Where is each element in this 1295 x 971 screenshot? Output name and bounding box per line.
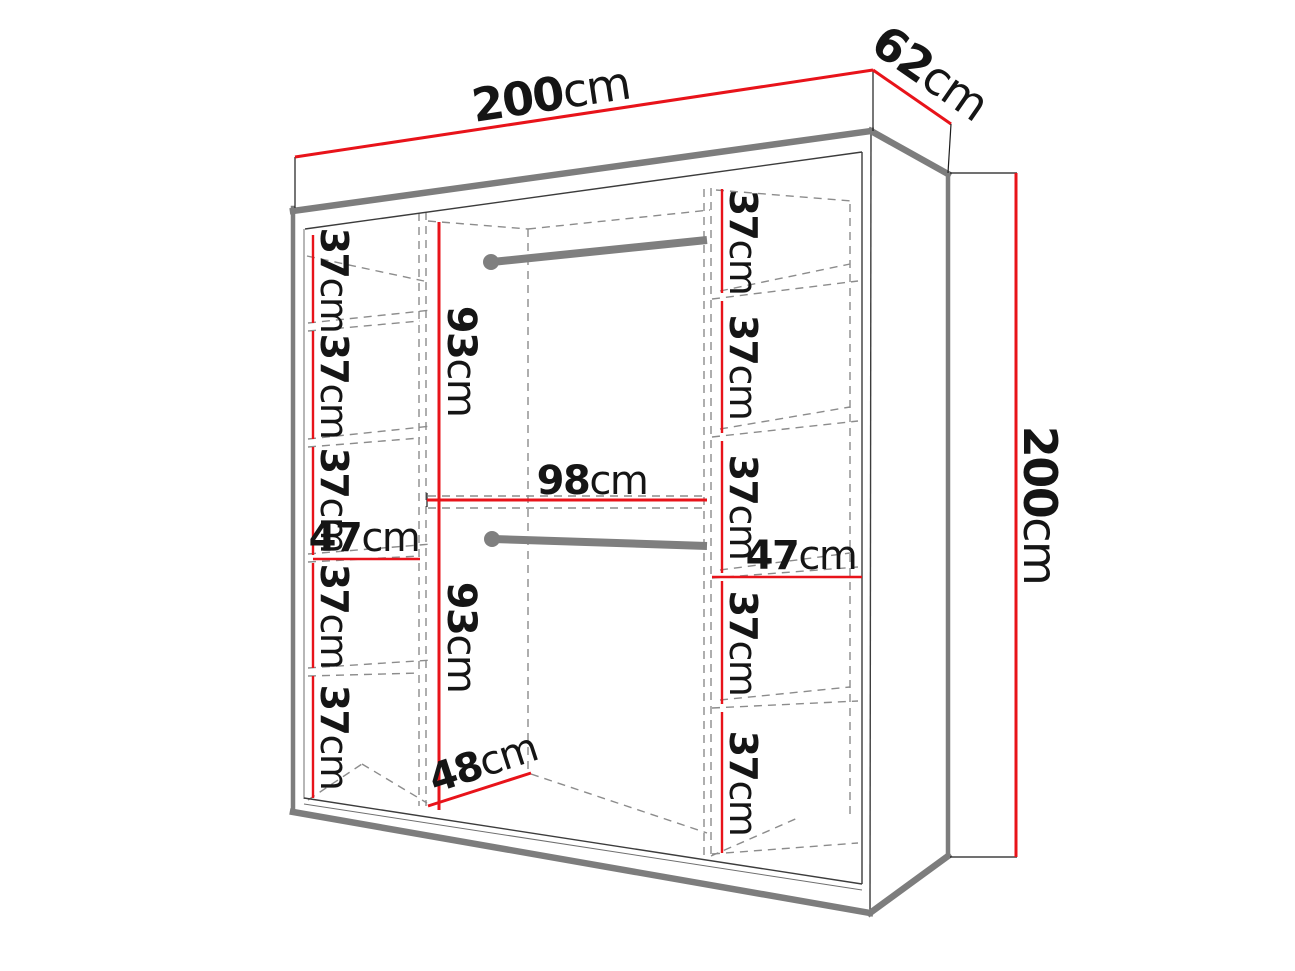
left-gap-1-label: 37cm: [312, 228, 356, 333]
center-lower-height-label: 93cm: [438, 582, 484, 693]
plinth-top-edge: [304, 804, 862, 890]
left-gap-2-label: 37cm: [312, 334, 356, 439]
right-gap-2-label: 37cm: [721, 315, 765, 420]
overall-width-label: 200cm: [468, 56, 633, 133]
right-shelf-4-front-dashed: [712, 701, 858, 708]
upper-hanging-rail: [492, 240, 707, 262]
upper-rail-end-cap: [483, 254, 499, 270]
top-right-depth-edge: [871, 131, 948, 174]
left-shelf-2-front-dashed: [308, 438, 420, 447]
center-floor-back-dashed: [531, 774, 707, 833]
right-floor-front-dashed: [712, 843, 858, 854]
center-ceiling-back-dashed-right: [528, 210, 710, 229]
right-gap-4-label: 37cm: [721, 591, 765, 696]
front-right-corner-edge: [870, 131, 871, 912]
center-ceiling-back-dashed-left: [428, 221, 528, 229]
center-width-label: 98cm: [537, 458, 648, 504]
front-bottom-edge: [293, 812, 870, 913]
diagram-canvas: 200cm 62cm 200cm 37cm 37cm 37cm 37cm 37c…: [0, 0, 1295, 971]
dimension-lines: [295, 70, 1017, 857]
overall-height-label: 200cm: [1013, 426, 1067, 585]
bottom-right-depth-edge: [870, 856, 948, 913]
right-width-label: 47cm: [746, 533, 857, 579]
right-shelf-2-front-dashed: [712, 421, 858, 437]
left-shelf-4-front-dashed: [308, 673, 420, 676]
left-width-label: 47cm: [309, 515, 420, 561]
lower-rail-end-cap: [484, 531, 500, 547]
lower-hanging-rail: [493, 539, 707, 546]
right-gap-5-label: 37cm: [721, 731, 765, 836]
center-depth-label: 48cm: [423, 725, 542, 803]
depth-dim-tick: [948, 124, 951, 173]
wardrobe-dimension-diagram: 200cm 62cm 200cm 37cm 37cm 37cm 37cm 37c…: [0, 0, 1295, 971]
left-gap-4-label: 37cm: [312, 564, 356, 669]
interior-floor-edge: [304, 798, 862, 884]
interior-ceiling-edge: [305, 152, 862, 229]
overall-depth-label: 62cm: [862, 14, 998, 131]
left-gap-5-label: 37cm: [312, 685, 356, 790]
center-upper-height-label: 93cm: [438, 306, 484, 417]
left-floor-back-dashed: [362, 764, 427, 803]
right-gap-1-label: 37cm: [721, 190, 765, 295]
